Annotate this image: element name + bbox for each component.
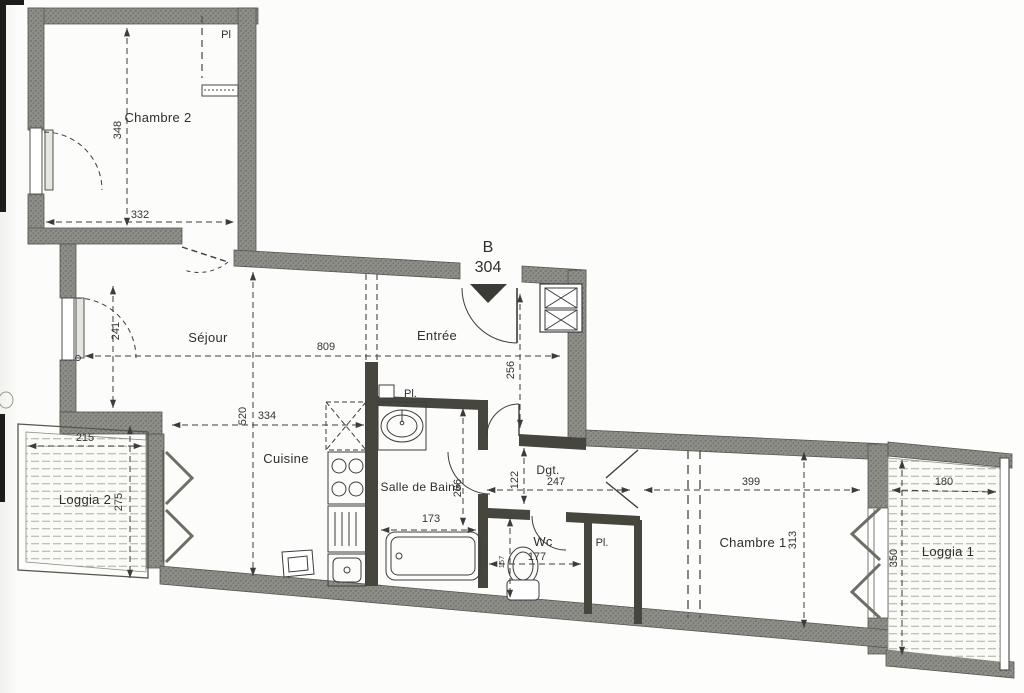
floor-plan-b304: B 304 Chambre 2 Pl Séjour Entrée Cuisine… bbox=[0, 0, 1024, 693]
window-leaf bbox=[45, 130, 53, 190]
stove bbox=[328, 452, 366, 504]
dim-wc-width: 177 bbox=[528, 551, 546, 563]
door-swing bbox=[487, 404, 519, 436]
dashed-partitions bbox=[202, 16, 700, 618]
door-swing bbox=[184, 262, 228, 272]
wall bbox=[584, 518, 592, 614]
dim-bathroom-depth: 266 bbox=[452, 479, 464, 497]
washbasin-counter bbox=[378, 402, 426, 450]
entrance-marker-icon bbox=[470, 284, 507, 303]
door-leaf bbox=[182, 247, 228, 262]
wall bbox=[365, 362, 378, 586]
window-leaf bbox=[76, 298, 84, 358]
wall bbox=[146, 434, 164, 568]
dim-sejour-depth: 520 bbox=[237, 407, 249, 425]
door-leaf bbox=[606, 450, 638, 478]
loggia1-floor bbox=[888, 458, 1000, 662]
wall-south bbox=[160, 566, 890, 648]
dim-degagement-depth: 122 bbox=[509, 471, 521, 489]
room-label-cuisine: Cuisine bbox=[263, 451, 308, 466]
room-label-sejour: Séjour bbox=[188, 330, 228, 345]
wall bbox=[60, 244, 76, 298]
dim-loggia1-depth: 350 bbox=[888, 549, 900, 567]
door-swing bbox=[76, 298, 136, 358]
wall bbox=[634, 520, 642, 624]
wall bbox=[488, 508, 530, 520]
scanned-floor-plan-page: B 304 Chambre 2 Pl Séjour Entrée Cuisine… bbox=[0, 0, 1024, 693]
wall bbox=[868, 444, 888, 508]
kitchen-counter bbox=[326, 402, 366, 586]
dim-loggia2-depth: 275 bbox=[113, 493, 125, 511]
technical-shaft bbox=[540, 284, 582, 332]
wall bbox=[28, 8, 44, 130]
wall bbox=[238, 8, 256, 260]
dim-loggia2-width: 215 bbox=[76, 432, 94, 444]
bathtub bbox=[386, 532, 480, 580]
room-label-degagement: Dgt. bbox=[536, 463, 559, 477]
bathroom-closet bbox=[379, 385, 394, 398]
wall bbox=[28, 8, 258, 24]
room-label-loggia1: Loggia 1 bbox=[922, 544, 974, 559]
dim-wc-depth: 157 bbox=[497, 556, 506, 569]
scan-artifacts bbox=[0, 0, 24, 502]
scan-edge-artifact bbox=[0, 414, 5, 502]
scan-blot bbox=[0, 392, 13, 408]
dim-bathroom-width: 173 bbox=[422, 513, 440, 525]
scan-edge-artifact bbox=[0, 0, 6, 212]
window bbox=[62, 298, 74, 360]
wall bbox=[234, 250, 460, 279]
closet-label-bathroom: Pl. bbox=[404, 388, 417, 400]
room-label-chambre2: Chambre 2 bbox=[124, 110, 191, 125]
dim-degagement-width: 247 bbox=[547, 476, 565, 488]
room-label-entree: Entrée bbox=[417, 328, 457, 343]
wall bbox=[60, 412, 162, 434]
kitchen-stool bbox=[282, 550, 314, 577]
folding-shutter bbox=[166, 510, 192, 562]
unit-number-label: 304 bbox=[475, 259, 502, 276]
room-label-wc: Wc bbox=[533, 534, 553, 549]
unit-marker: B 304 bbox=[470, 239, 507, 303]
dim-sejour-window-height: 241 bbox=[110, 322, 122, 340]
dim-chambre1-width: 399 bbox=[742, 476, 760, 488]
unit-block-label: B bbox=[483, 239, 494, 256]
dim-sejour-kitchen-width: 334 bbox=[258, 410, 276, 422]
room-label-salle-de-bains: Salle de Bains bbox=[381, 480, 462, 494]
french-window bbox=[868, 508, 888, 618]
room-label-loggia2: Loggia 2 bbox=[59, 492, 111, 507]
loggia1-railing bbox=[1000, 458, 1009, 670]
closet-shelf-chambre2 bbox=[202, 85, 238, 96]
room-label-chambre1: Chambre 1 bbox=[719, 535, 786, 550]
dim-chambre2-width: 332 bbox=[131, 209, 149, 221]
door-leaf bbox=[606, 482, 638, 508]
dim-entree-depth: 256 bbox=[505, 361, 517, 379]
folding-shutter bbox=[166, 452, 192, 504]
dim-sejour-width: 809 bbox=[317, 341, 335, 353]
closet-label-hallway: Pl. bbox=[596, 537, 609, 549]
wall bbox=[566, 512, 640, 526]
dim-chambre1-depth: 313 bbox=[787, 531, 799, 549]
oven bbox=[328, 506, 366, 552]
dim-loggia1-width: 180 bbox=[935, 476, 953, 488]
dim-chambre2-height: 348 bbox=[112, 121, 124, 139]
closet-label-chambre2: Pl bbox=[221, 29, 231, 41]
window bbox=[30, 128, 42, 194]
bathtub-drain bbox=[396, 553, 402, 559]
wall bbox=[28, 228, 182, 244]
scan-edge-artifact bbox=[0, 0, 24, 5]
